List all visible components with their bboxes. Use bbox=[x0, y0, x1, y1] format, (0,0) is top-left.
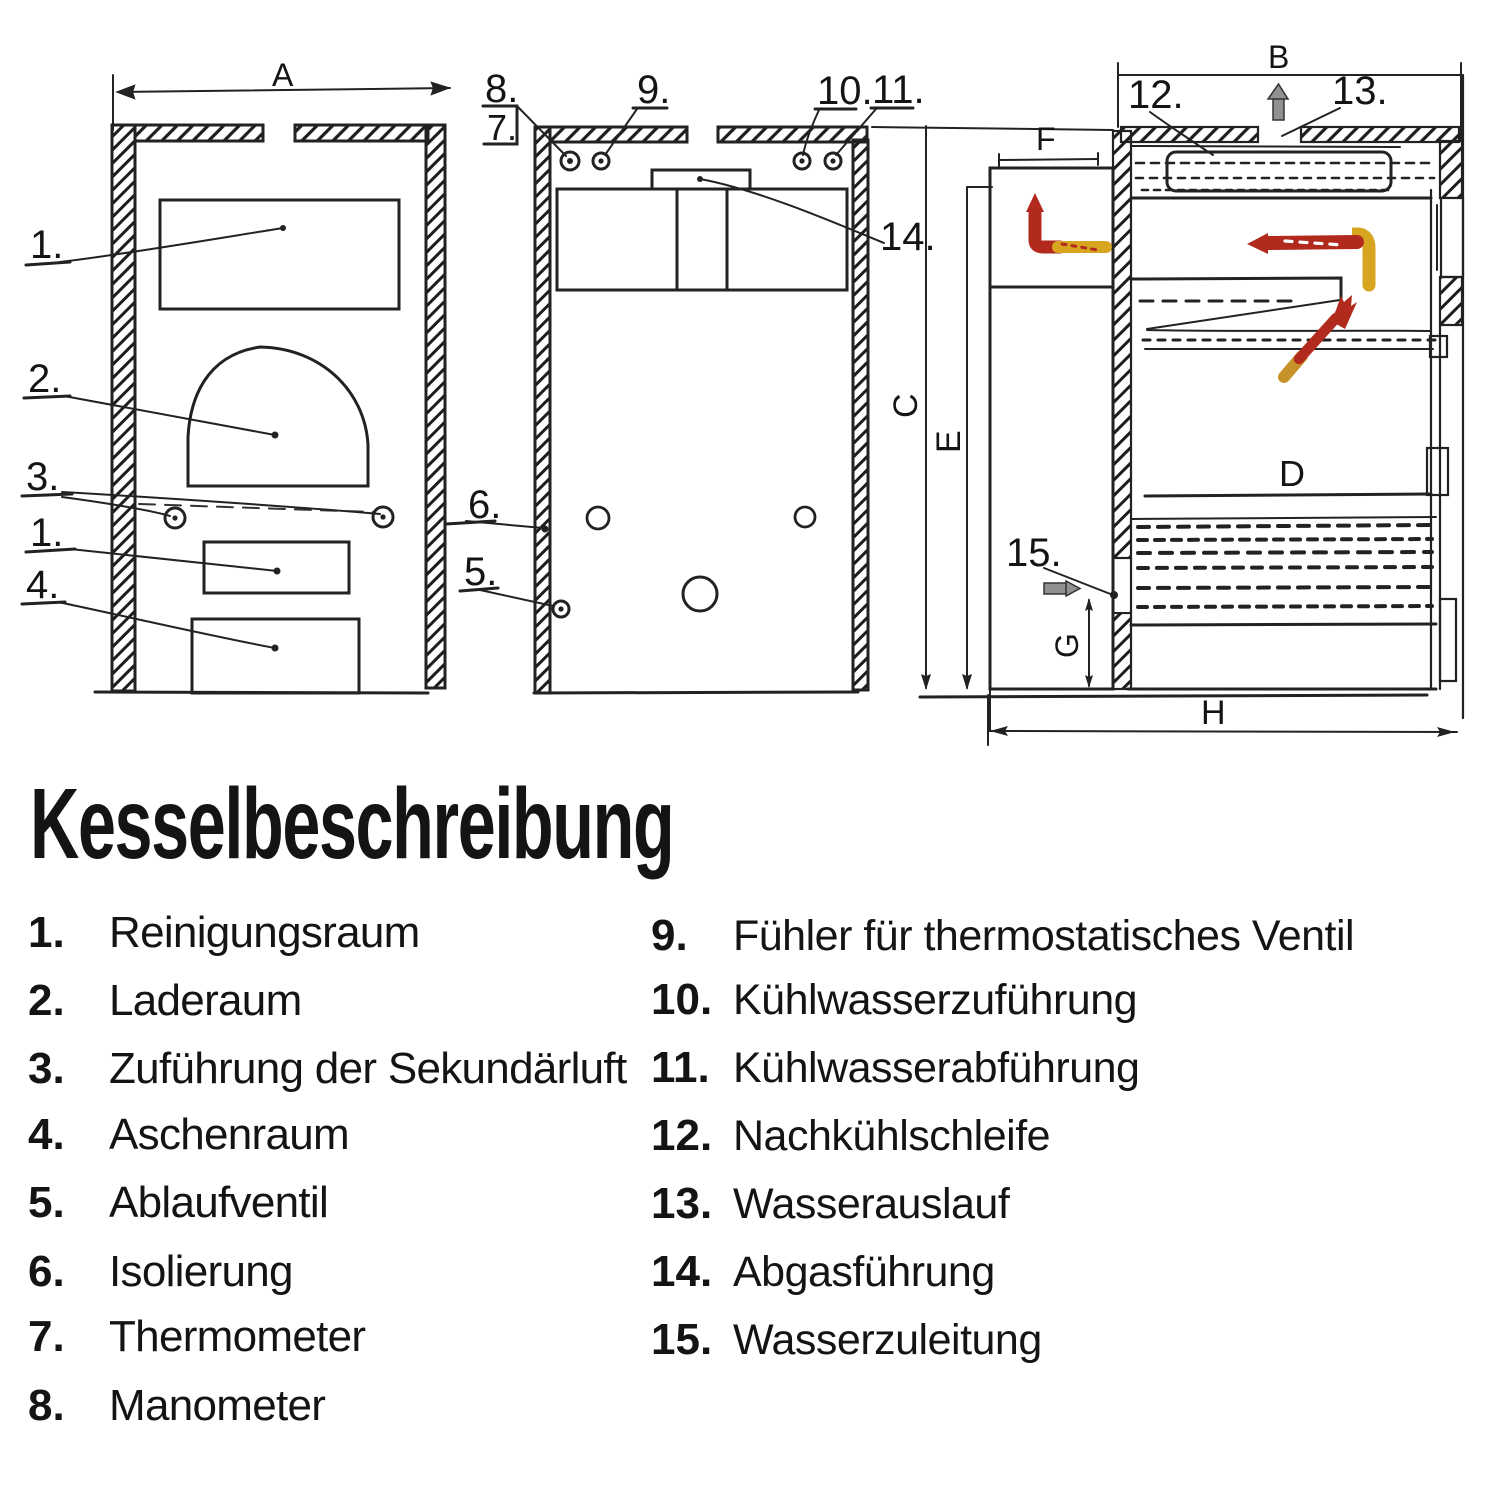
svg-text:7.: 7. bbox=[487, 107, 517, 148]
svg-text:2.: 2. bbox=[28, 357, 61, 401]
svg-text:9.: 9. bbox=[637, 68, 670, 112]
svg-text:3.: 3. bbox=[26, 455, 59, 499]
svg-text:Kühlwasserabführung: Kühlwasserabführung bbox=[733, 1044, 1139, 1092]
svg-text:Ablaufventil: Ablaufventil bbox=[109, 1178, 328, 1227]
svg-text:Wasserzuleitung: Wasserzuleitung bbox=[733, 1316, 1042, 1364]
svg-text:12.: 12. bbox=[1128, 73, 1184, 117]
svg-text:15.: 15. bbox=[651, 1315, 712, 1364]
svg-text:1.: 1. bbox=[28, 908, 65, 957]
svg-text:1.: 1. bbox=[30, 511, 63, 555]
svg-text:Aschenraum: Aschenraum bbox=[109, 1110, 349, 1159]
svg-text:14.: 14. bbox=[880, 215, 936, 259]
svg-text:Reinigungsraum: Reinigungsraum bbox=[109, 908, 420, 957]
svg-text:Isolierung: Isolierung bbox=[109, 1247, 293, 1296]
svg-text:2.: 2. bbox=[28, 976, 65, 1025]
svg-text:Laderaum: Laderaum bbox=[109, 976, 302, 1025]
svg-text:Thermometer: Thermometer bbox=[109, 1312, 365, 1361]
svg-text:D: D bbox=[1279, 453, 1305, 494]
svg-text:6.: 6. bbox=[28, 1247, 65, 1296]
svg-text:B: B bbox=[1268, 39, 1289, 75]
svg-text:E: E bbox=[930, 430, 968, 453]
svg-text:Nachkühlschleife: Nachkühlschleife bbox=[733, 1112, 1050, 1160]
svg-text:Kesselbeschreibung: Kesselbeschreibung bbox=[30, 768, 673, 880]
svg-text:Manometer: Manometer bbox=[109, 1381, 325, 1430]
svg-text:7.: 7. bbox=[28, 1312, 65, 1361]
svg-text:A: A bbox=[272, 57, 294, 93]
svg-text:5.: 5. bbox=[28, 1178, 65, 1227]
svg-text:H: H bbox=[1201, 694, 1226, 732]
svg-text:8.: 8. bbox=[485, 67, 518, 111]
svg-text:11.: 11. bbox=[872, 68, 925, 112]
svg-text:C: C bbox=[887, 393, 925, 418]
svg-text:13.: 13. bbox=[651, 1179, 712, 1228]
svg-text:4.: 4. bbox=[28, 1110, 65, 1159]
svg-text:12.: 12. bbox=[651, 1111, 712, 1160]
svg-text:Kühlwasserzuführung: Kühlwasserzuführung bbox=[733, 976, 1137, 1024]
svg-text:14.: 14. bbox=[651, 1247, 712, 1296]
svg-text:Wasserauslauf: Wasserauslauf bbox=[733, 1180, 1011, 1228]
svg-text:G: G bbox=[1049, 633, 1085, 658]
svg-text:1.: 1. bbox=[30, 223, 63, 267]
svg-text:Fühler für thermostatisches Ve: Fühler für thermostatisches Ventil bbox=[733, 912, 1354, 960]
svg-text:4.: 4. bbox=[26, 563, 59, 607]
svg-text:9.: 9. bbox=[651, 911, 688, 960]
svg-text:Abgasführung: Abgasführung bbox=[733, 1248, 995, 1296]
svg-text:10.: 10. bbox=[817, 69, 873, 113]
svg-text:13.: 13. bbox=[1332, 69, 1388, 113]
svg-text:10.: 10. bbox=[651, 975, 712, 1024]
svg-text:15.: 15. bbox=[1006, 531, 1062, 575]
svg-text:11.: 11. bbox=[651, 1043, 710, 1092]
svg-text:8.: 8. bbox=[28, 1381, 65, 1430]
svg-text:Zuführung der Sekundärluft: Zuführung der Sekundärluft bbox=[109, 1044, 627, 1093]
svg-text:F: F bbox=[1036, 121, 1056, 157]
svg-text:3.: 3. bbox=[28, 1044, 65, 1093]
